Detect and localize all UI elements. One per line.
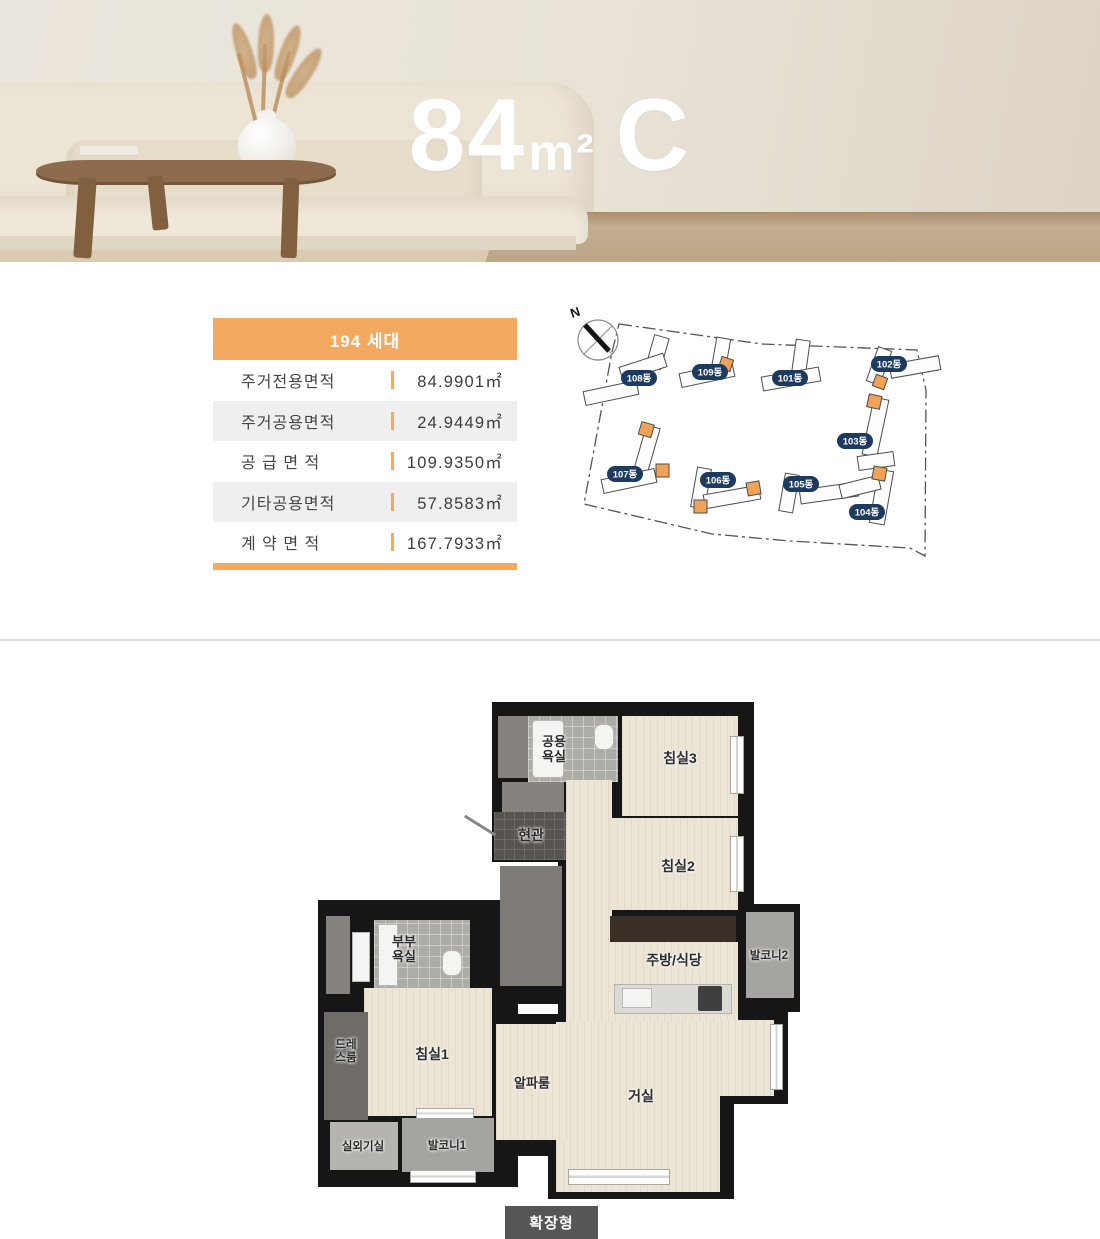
living-room-floor [556, 1022, 720, 1192]
window [730, 836, 744, 892]
table-leg [281, 178, 300, 259]
niche-area [326, 916, 350, 994]
row-value: 84.9901㎡ [396, 368, 517, 392]
window [730, 736, 744, 794]
room-label-common-bath: 공용욕실 [539, 735, 569, 765]
sink [622, 988, 652, 1008]
table-row: 주거전용면적 84.9901㎡ [213, 360, 517, 401]
room-label-living-room: 거실 [628, 1086, 654, 1106]
building-label-103: 103동 [837, 433, 873, 449]
hero-photo: 84 m² C [0, 0, 1100, 262]
row-label: 주거공용면적 [213, 409, 391, 433]
svg-text:106동: 106동 [706, 476, 731, 487]
section-divider [0, 639, 1100, 641]
table-row: 계 약 면 적 167.7933㎡ [213, 522, 517, 563]
room-label-bedroom2: 침실2 [661, 856, 695, 876]
expand-type-button[interactable]: 확장형 [505, 1206, 598, 1239]
window [416, 1108, 474, 1119]
row-label: 공 급 면 적 [213, 449, 391, 473]
row-value: 57.8583㎡ [396, 490, 517, 514]
room-label-kitchen: 주방/식당 [646, 950, 701, 970]
row-value: 167.7933㎡ [396, 530, 517, 554]
building-label-102: 102동 [871, 356, 907, 372]
toilet [442, 950, 462, 976]
books [80, 146, 138, 155]
site-map: N [562, 298, 982, 590]
window [770, 1024, 783, 1090]
svg-text:108동: 108동 [627, 374, 652, 385]
title-type: C [616, 84, 692, 186]
room-label-bedroom1: 침실1 [415, 1044, 449, 1064]
stove [698, 986, 722, 1011]
room-label-alpha-room: 알파룸 [514, 1073, 550, 1092]
dining-extension [714, 1020, 774, 1096]
toilet [594, 724, 614, 750]
pampas-plume [257, 14, 275, 73]
row-divider-bar [391, 452, 394, 470]
page: 84 m² C 194 세대 주거전용면적 84.9901㎡ 주거공용면적 24… [0, 0, 1100, 1239]
row-label: 기타공용면적 [213, 490, 391, 514]
page-title: 84 m² C [409, 84, 692, 186]
building-103 [857, 394, 895, 471]
table-row: 기타공용면적 57.8583㎡ [213, 482, 517, 523]
shower [352, 932, 370, 982]
building-107 [601, 422, 669, 494]
pampas-plume [227, 21, 260, 81]
row-value: 109.9350㎡ [396, 449, 517, 473]
table-row: 주거공용면적 24.9449㎡ [213, 401, 517, 442]
building-label-101: 101동 [772, 370, 808, 386]
room-label-entrance: 현관 [518, 825, 544, 845]
svg-text:101동: 101동 [778, 374, 803, 385]
table-header: 194 세대 [213, 318, 517, 360]
row-value: 24.9449㎡ [396, 409, 517, 433]
building-108 [583, 335, 669, 406]
floor-plan: 공용욕실 침실3 현관 침실2 부부욕실 주방/식당 발코니2 드레스룸 침실1… [306, 692, 800, 1194]
compass-n-label: N [568, 304, 582, 321]
building-label-106: 106동 [700, 472, 736, 488]
row-label: 주거전용면적 [213, 368, 391, 392]
building-label-108: 108동 [621, 370, 657, 386]
table-bottom-rule [213, 563, 517, 570]
building-label-109: 109동 [692, 364, 728, 380]
building-label-104: 104동 [849, 504, 885, 520]
room-label-balcony1: 발코니1 [428, 1137, 466, 1153]
window [568, 1169, 670, 1185]
row-label: 계 약 면 적 [213, 530, 391, 554]
table-row: 공 급 면 적 109.9350㎡ [213, 441, 517, 482]
svg-text:102동: 102동 [877, 360, 902, 371]
vestibule [502, 782, 564, 812]
row-divider-bar [391, 412, 394, 430]
title-unit: m² [528, 127, 596, 179]
dress-room-floor [324, 1012, 368, 1120]
room-label-dress-room: 드레스룸 [333, 1039, 359, 1065]
area-info-table: 194 세대 주거전용면적 84.9901㎡ 주거공용면적 24.9449㎡ 공… [213, 318, 517, 570]
room-label-master-bath: 부부욕실 [389, 935, 419, 965]
room-label-outdoor-unit: 실외기실 [342, 1138, 384, 1154]
building-label-107: 107동 [607, 466, 643, 482]
building-label-105: 105동 [783, 476, 819, 492]
room-label-bedroom3: 침실3 [663, 748, 697, 768]
row-divider-bar [391, 371, 394, 389]
storage-area [500, 866, 562, 986]
compass-icon: N [568, 304, 618, 360]
svg-text:109동: 109동 [698, 368, 723, 379]
row-divider-bar [391, 493, 394, 511]
window [410, 1170, 476, 1183]
row-divider-bar [391, 533, 394, 551]
title-number: 84 [409, 84, 526, 186]
svg-text:104동: 104동 [855, 508, 880, 519]
svg-text:105동: 105동 [789, 480, 814, 491]
room-label-balcony2: 발코니2 [750, 947, 788, 963]
svg-text:107동: 107동 [613, 470, 638, 481]
svg-text:103동: 103동 [843, 437, 868, 448]
kitchen-cabinets [610, 916, 736, 942]
